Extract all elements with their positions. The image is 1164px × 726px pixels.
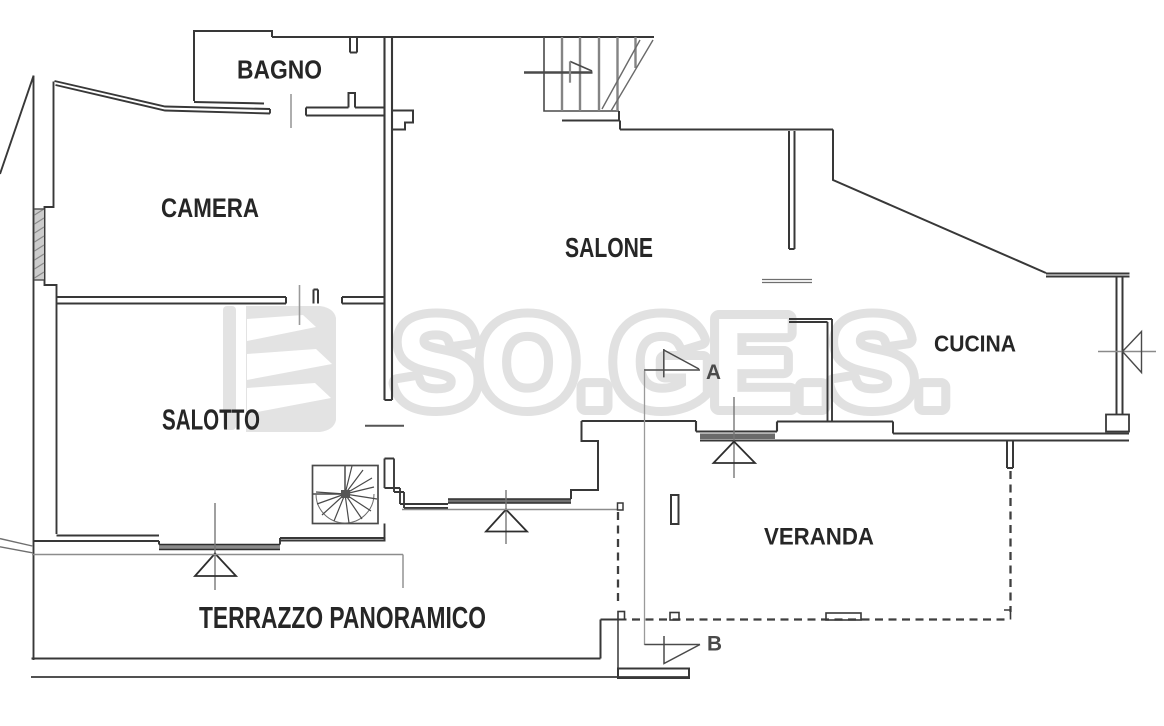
svg-text:TERRAZZO PANORAMICO: TERRAZZO PANORAMICO — [199, 600, 486, 635]
svg-text:CUCINA: CUCINA — [934, 331, 1016, 357]
svg-text:A: A — [706, 361, 721, 384]
svg-text:BAGNO: BAGNO — [237, 55, 322, 85]
svg-text:SALOTTO: SALOTTO — [162, 405, 260, 437]
svg-text:CAMERA: CAMERA — [161, 193, 259, 223]
svg-text:B: B — [707, 633, 722, 656]
svg-text:VERANDA: VERANDA — [764, 524, 874, 551]
svg-text:SALONE: SALONE — [565, 232, 653, 263]
svg-text:SO.GE.S.: SO.GE.S. — [394, 292, 950, 433]
